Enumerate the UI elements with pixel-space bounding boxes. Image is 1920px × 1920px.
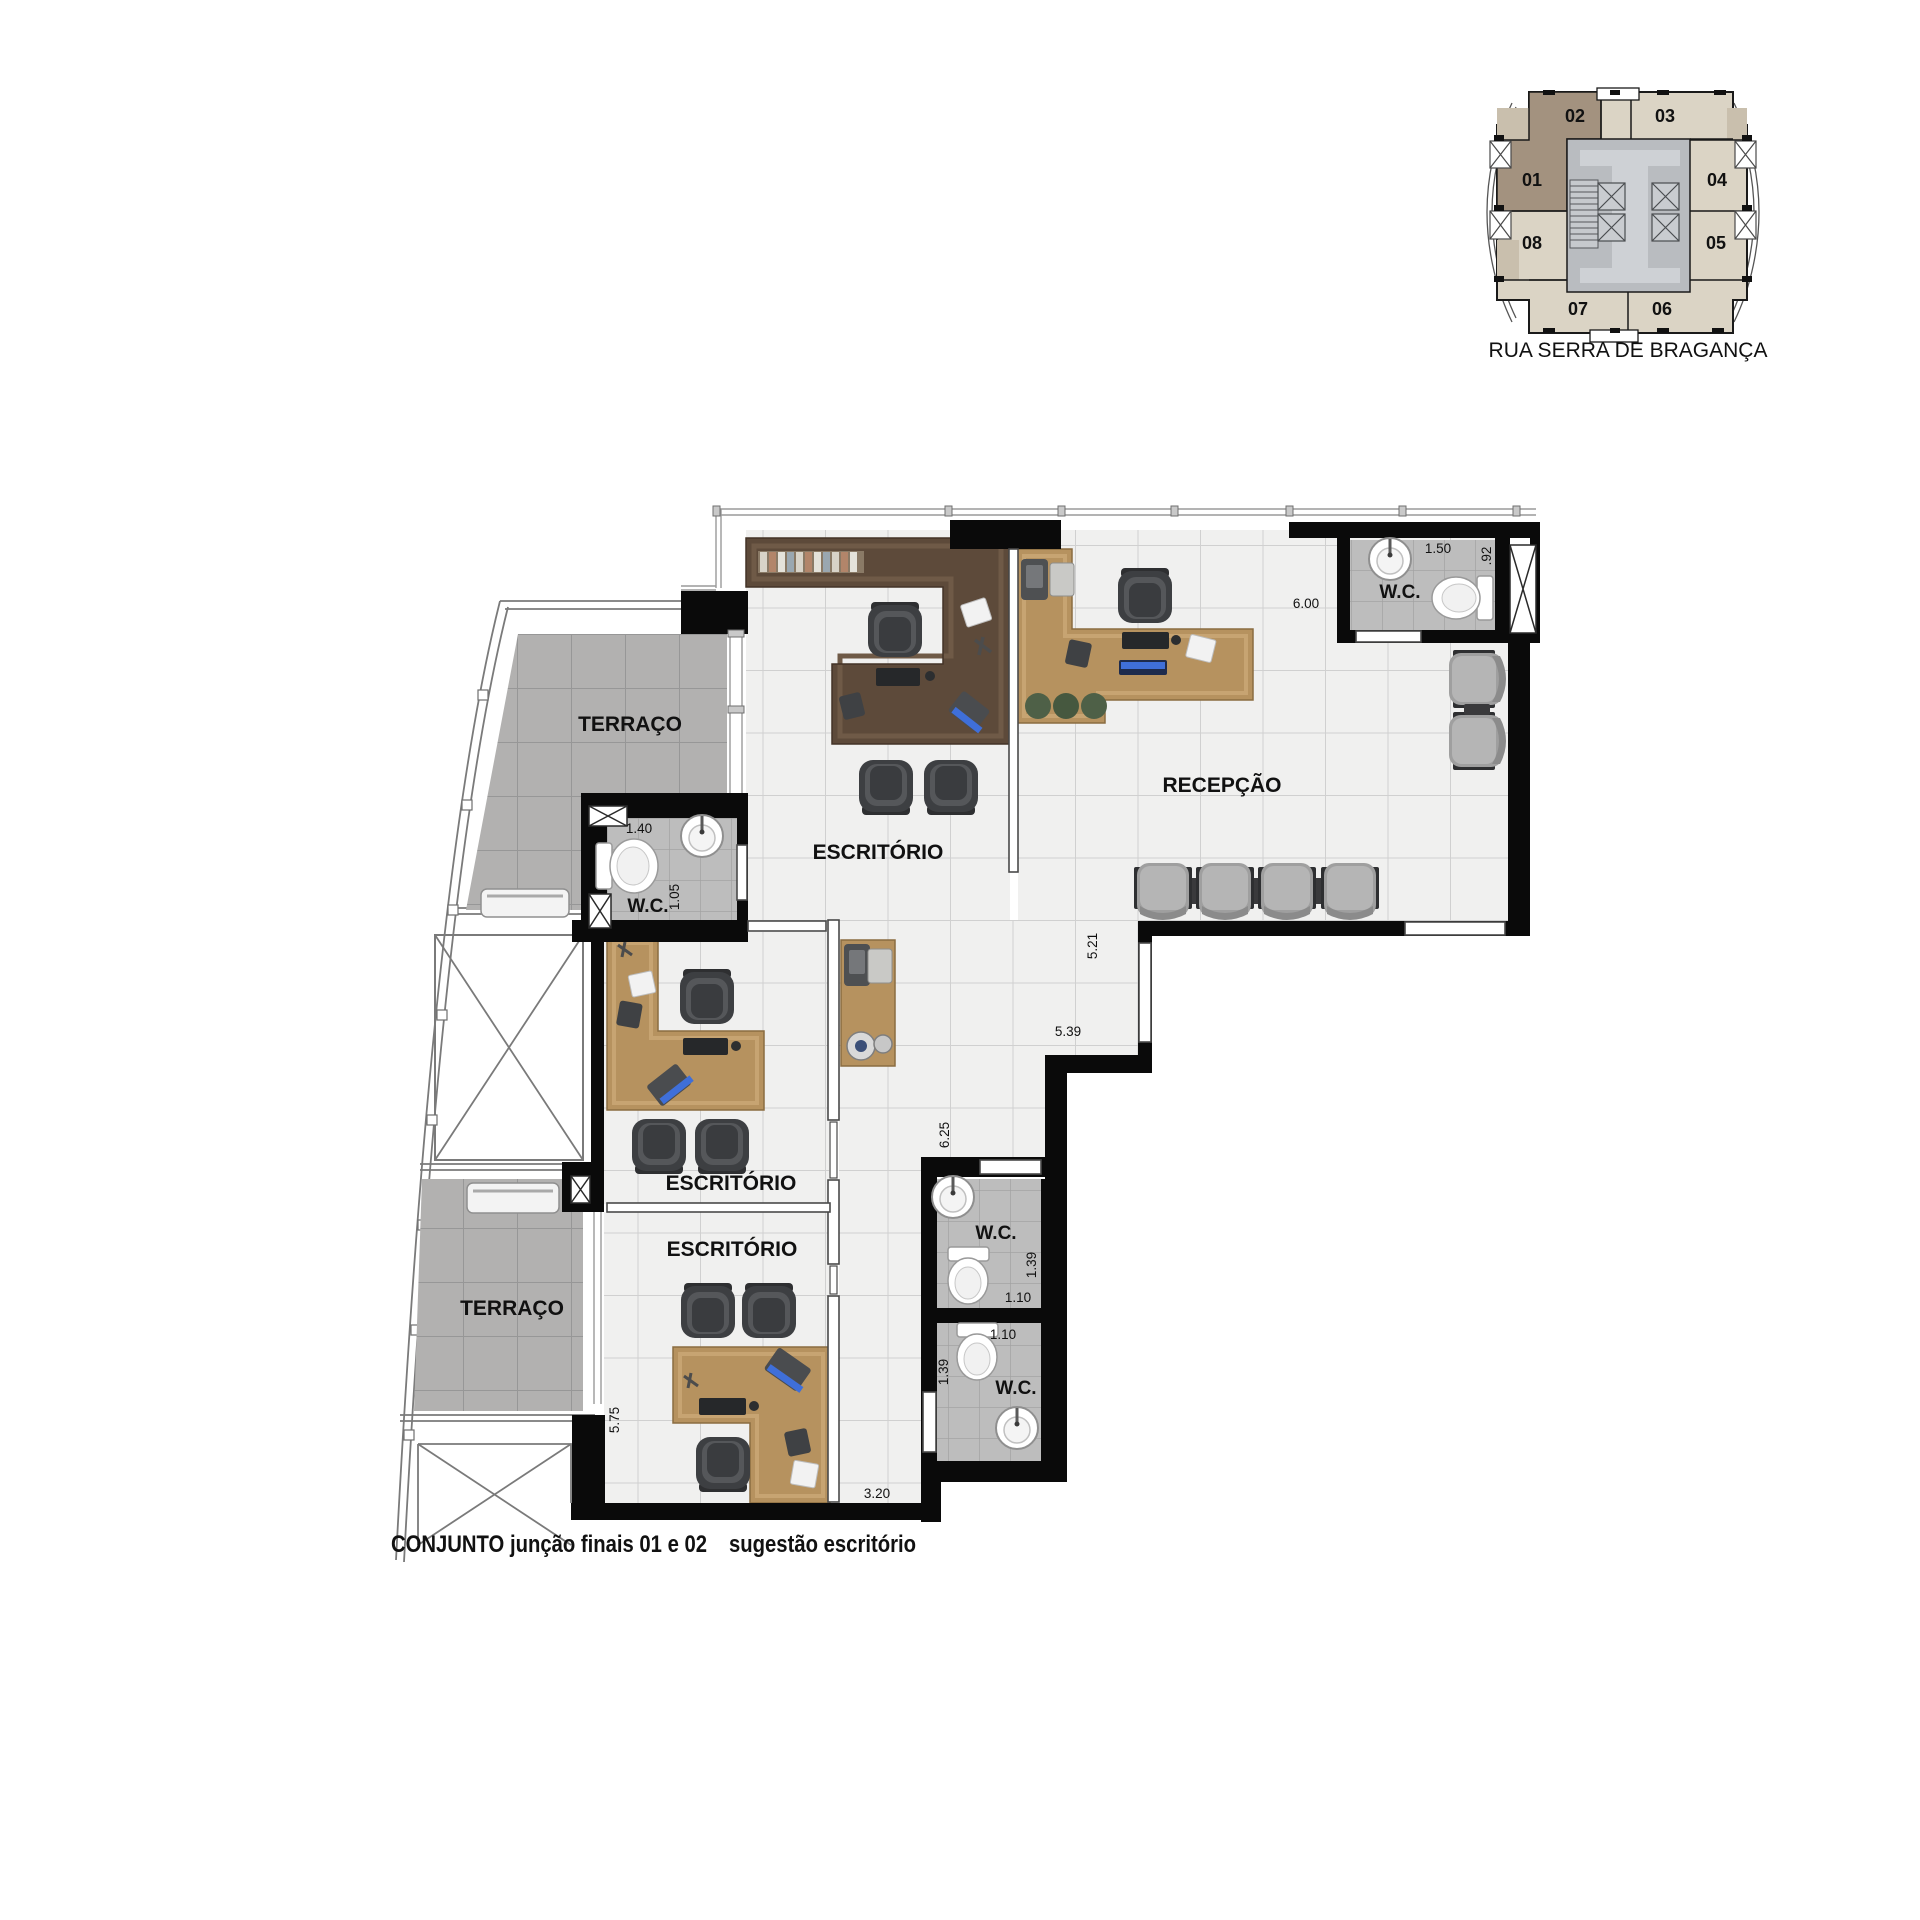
- svg-text:CONJUNTO junção finais 01 e 02: CONJUNTO junção finais 01 e 02: [391, 1531, 707, 1558]
- svg-text:W.C.: W.C.: [995, 1378, 1036, 1399]
- svg-text:06: 06: [1652, 299, 1672, 319]
- svg-text:02: 02: [1565, 106, 1585, 126]
- svg-text:5.39: 5.39: [1055, 1024, 1081, 1039]
- svg-text:5.75: 5.75: [607, 1407, 622, 1433]
- svg-text:ESCRITÓRIO: ESCRITÓRIO: [667, 1237, 798, 1261]
- svg-text:6.00: 6.00: [1293, 596, 1319, 611]
- svg-text:03: 03: [1655, 106, 1675, 126]
- svg-text:W.C.: W.C.: [975, 1223, 1016, 1244]
- svg-text:TERRAÇO: TERRAÇO: [578, 713, 682, 736]
- svg-text:1.10: 1.10: [990, 1327, 1016, 1342]
- svg-text:1.50: 1.50: [1425, 541, 1451, 556]
- svg-text:sugestão escritório: sugestão escritório: [729, 1531, 916, 1558]
- svg-text:1.10: 1.10: [1005, 1290, 1031, 1305]
- svg-text:RUA SERRA DE BRAGANÇA: RUA SERRA DE BRAGANÇA: [1489, 339, 1768, 362]
- svg-text:04: 04: [1707, 170, 1727, 190]
- svg-text:5.21: 5.21: [1085, 933, 1100, 959]
- svg-text:1.39: 1.39: [936, 1359, 951, 1385]
- svg-text:05: 05: [1706, 233, 1726, 253]
- svg-text:ESCRITÓRIO: ESCRITÓRIO: [813, 840, 944, 864]
- svg-text:TERRAÇO: TERRAÇO: [460, 1297, 564, 1320]
- svg-text:1.05: 1.05: [667, 884, 682, 910]
- svg-text:6.25: 6.25: [937, 1122, 952, 1148]
- svg-text:ESCRITÓRIO: ESCRITÓRIO: [666, 1171, 797, 1195]
- svg-text:W.C.: W.C.: [627, 896, 668, 917]
- svg-text:.92: .92: [1479, 547, 1494, 566]
- svg-text:W.C.: W.C.: [1379, 582, 1420, 603]
- svg-text:01: 01: [1522, 170, 1542, 190]
- svg-text:RECEPÇÃO: RECEPÇÃO: [1162, 774, 1281, 797]
- svg-text:07: 07: [1568, 299, 1588, 319]
- svg-text:3.20: 3.20: [864, 1486, 890, 1501]
- svg-text:1.40: 1.40: [626, 821, 652, 836]
- svg-text:08: 08: [1522, 233, 1542, 253]
- svg-text:1.39: 1.39: [1024, 1252, 1039, 1278]
